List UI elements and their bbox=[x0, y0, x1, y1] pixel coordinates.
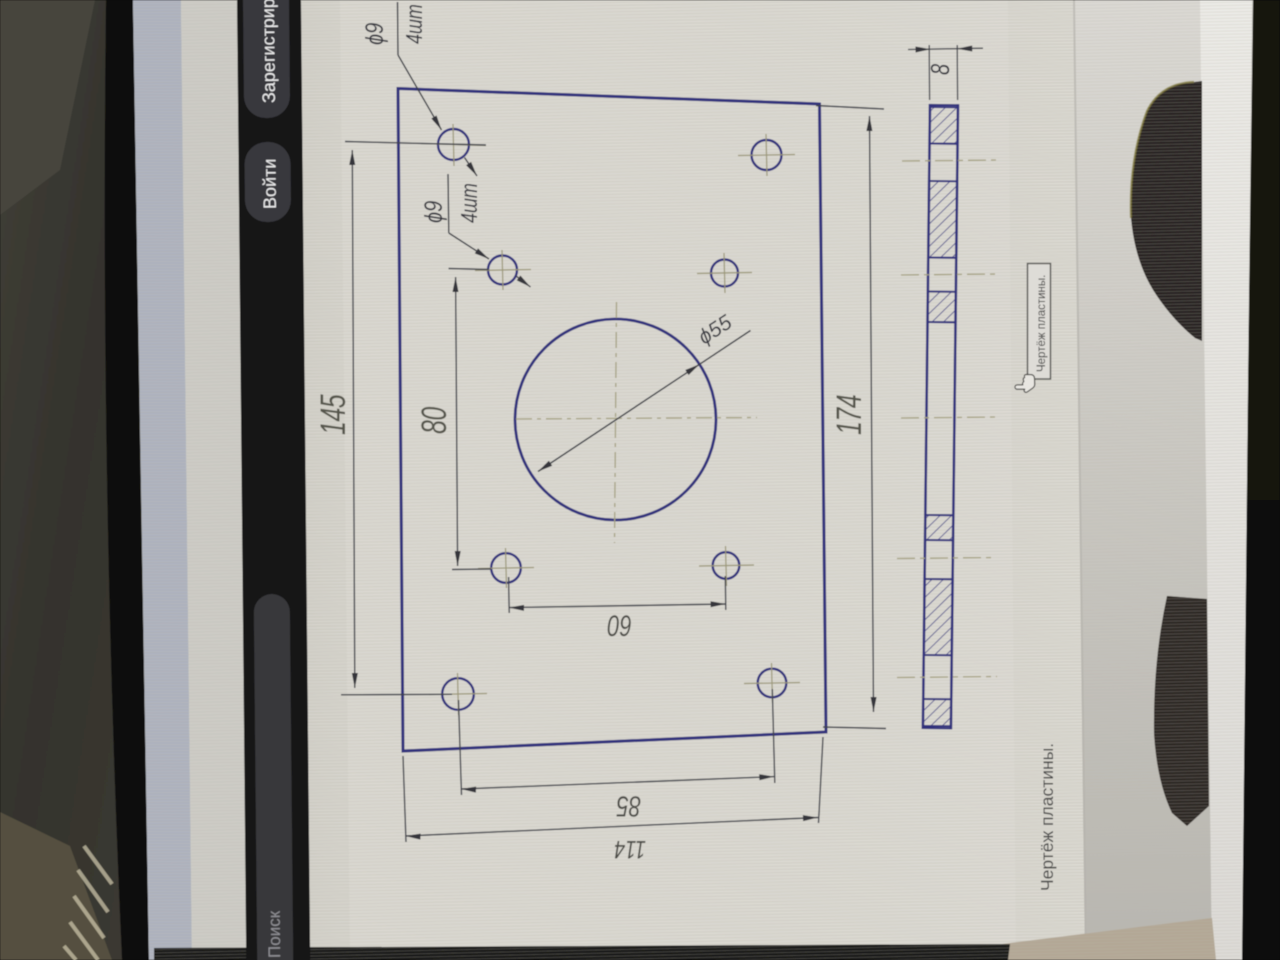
svg-text:85: 85 bbox=[616, 790, 641, 821]
svg-text:Чертёж пластины.: Чертёж пластины. bbox=[1036, 275, 1048, 372]
svg-text:80: 80 bbox=[415, 407, 454, 434]
svg-text:174: 174 bbox=[830, 395, 869, 435]
svg-text:145: 145 bbox=[314, 394, 353, 435]
svg-text:4шт: 4шт bbox=[457, 183, 483, 223]
svg-text:114: 114 bbox=[614, 835, 646, 863]
svg-text:Войти: Войти bbox=[260, 159, 280, 210]
svg-text:ϕ9: ϕ9 bbox=[420, 200, 448, 223]
svg-text:Поиск: Поиск bbox=[265, 910, 284, 958]
svg-text:8: 8 bbox=[925, 64, 954, 75]
svg-text:4шт: 4шт bbox=[402, 4, 428, 44]
svg-text:ϕ9: ϕ9 bbox=[361, 22, 389, 45]
svg-text:60: 60 bbox=[607, 609, 632, 643]
svg-text:Чертёж пластины.: Чертёж пластины. bbox=[1037, 743, 1057, 891]
svg-text:Зарегистрироваться: Зарегистрироваться bbox=[257, 0, 279, 103]
